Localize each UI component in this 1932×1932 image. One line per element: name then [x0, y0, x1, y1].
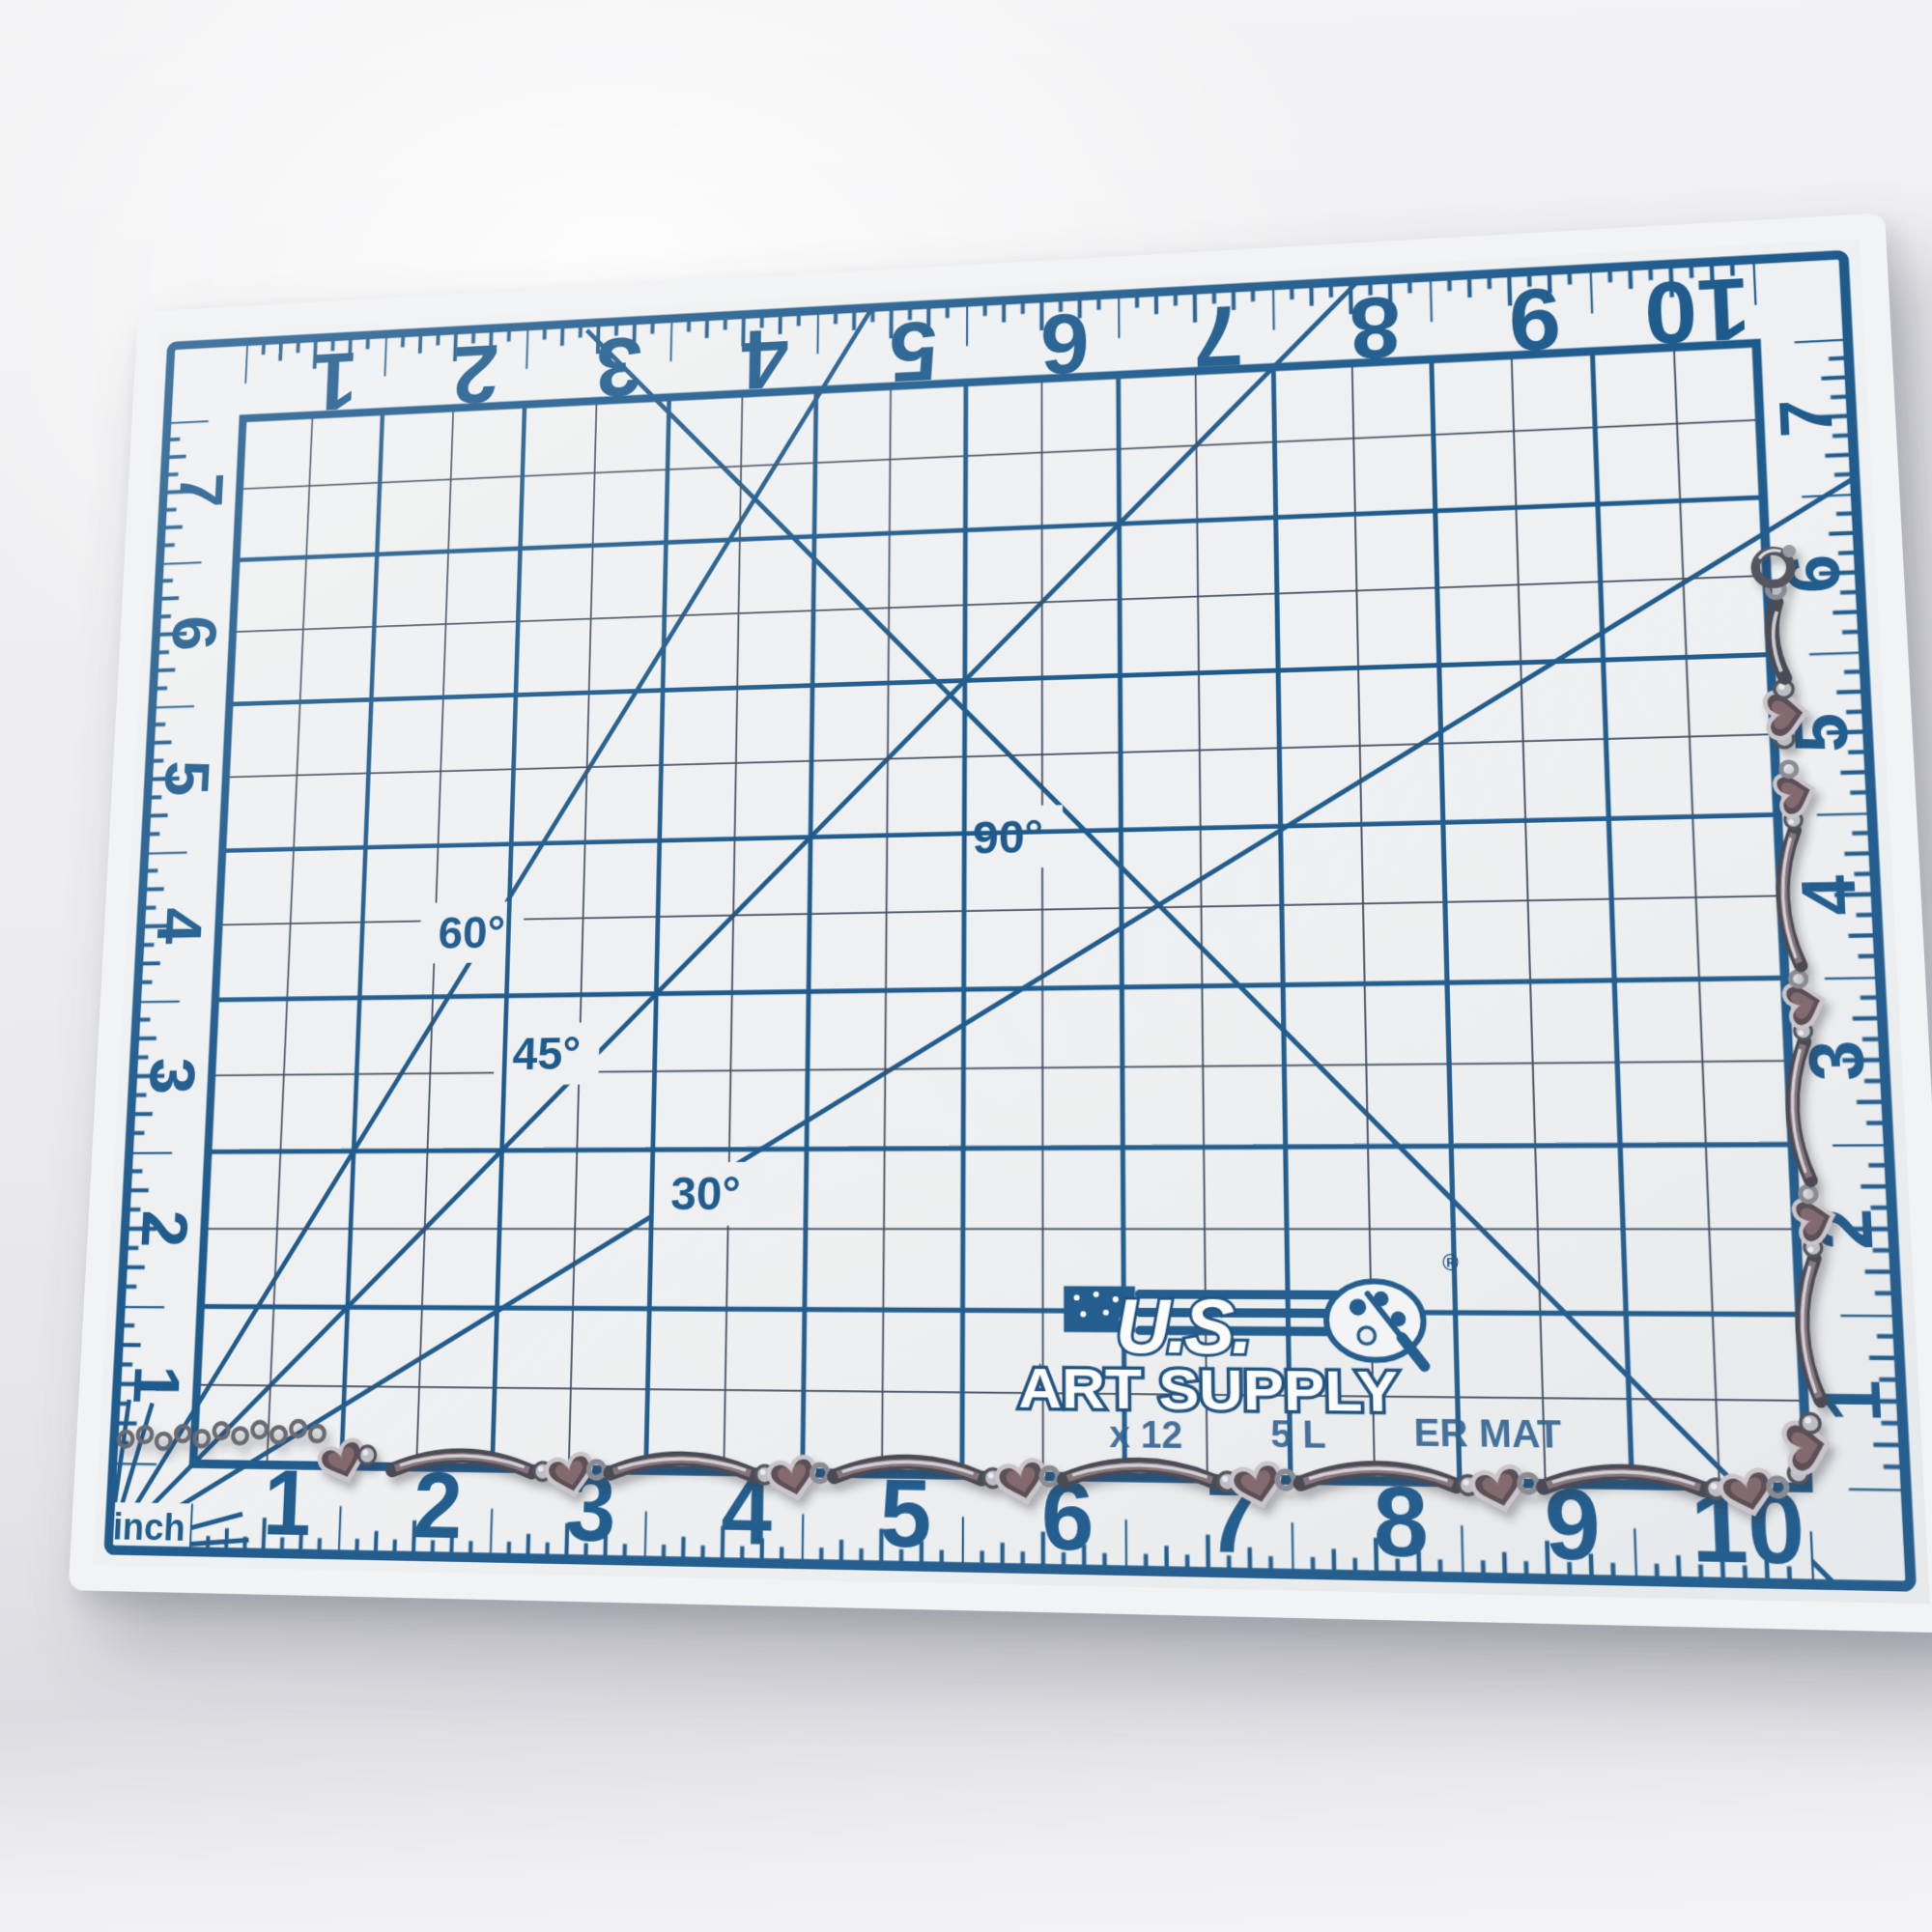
- top-number: 6: [1040, 296, 1090, 393]
- right-number: 7: [1766, 397, 1849, 439]
- left-number: 7: [166, 472, 235, 510]
- left-number: 2: [128, 1209, 200, 1247]
- bottom-number: 1: [262, 1450, 314, 1555]
- right-number: 4: [1787, 874, 1873, 916]
- size-fragment: x 12: [1109, 1412, 1182, 1457]
- mat-print-area: 1 2 3 4 5 6 7 8 9 10 1 2 3 4 5 6 7 8 9 1…: [93, 239, 1930, 1605]
- angle-label-45: 45°: [512, 1027, 582, 1080]
- registered-mark: ®: [1442, 1252, 1460, 1276]
- top-number: 3: [594, 320, 643, 414]
- top-number: 10: [1642, 259, 1752, 363]
- left-number: 6: [158, 614, 228, 652]
- size-fragment: ER MAT: [1413, 1410, 1562, 1457]
- photo-backdrop: 1 2 3 4 5 6 7 8 9 10 1 2 3 4 5 6 7 8 9 1…: [0, 0, 1932, 1932]
- top-number: 4: [740, 312, 789, 408]
- top-number: 8: [1349, 278, 1402, 378]
- left-number: 3: [135, 1057, 207, 1094]
- top-number: 1: [310, 335, 359, 429]
- left-number: 5: [151, 759, 221, 797]
- left-number: 4: [143, 907, 213, 945]
- top-number: 9: [1507, 270, 1562, 370]
- angle-label-60: 60°: [438, 906, 506, 958]
- bottom-number: 5: [879, 1458, 931, 1567]
- angle-label-30: 30°: [670, 1166, 741, 1220]
- brand-line2: ART SUPPLY: [1019, 1358, 1400, 1425]
- left-number: 1: [119, 1365, 191, 1404]
- top-number: 5: [889, 303, 938, 400]
- cutting-mat: 1 2 3 4 5 6 7 8 9 10 1 2 3 4 5 6 7 8 9 1…: [69, 213, 1932, 1634]
- top-number: 7: [1193, 287, 1244, 385]
- size-fragment: 5 L: [1270, 1412, 1326, 1457]
- top-number: 2: [451, 327, 500, 422]
- angle-label-90: 90°: [973, 810, 1043, 864]
- inch-label: inch: [112, 1505, 186, 1548]
